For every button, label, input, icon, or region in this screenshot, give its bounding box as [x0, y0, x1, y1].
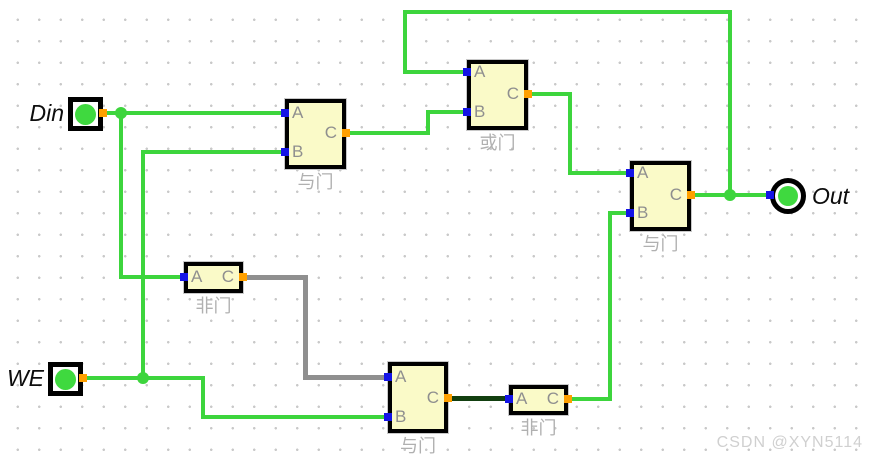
watermark: CSDN @XYN5114: [717, 434, 863, 452]
input-terminal-we[interactable]: [48, 362, 83, 396]
output-pin[interactable]: [564, 395, 572, 403]
gate-input-pin-label: B: [637, 204, 655, 221]
gate-output-pin-label: C: [501, 85, 519, 102]
gate-input-pin-label: A: [395, 368, 413, 385]
wire-segment-high[interactable]: [201, 376, 205, 419]
wire-segment-high[interactable]: [403, 10, 732, 14]
gate-input-pin-label: A: [292, 104, 310, 121]
gate-name-label: 与门: [368, 436, 468, 456]
gate-input-pin-label: B: [474, 103, 492, 120]
output-pin[interactable]: [444, 394, 452, 402]
wire-segment-high[interactable]: [101, 111, 287, 115]
input-pin[interactable]: [180, 273, 188, 281]
terminal-output-pin[interactable]: [99, 109, 107, 117]
output-pin[interactable]: [239, 273, 247, 281]
wire-segment-high[interactable]: [119, 111, 123, 279]
wire-segment-high[interactable]: [201, 415, 390, 419]
gate-output-pin-label: C: [319, 124, 337, 141]
gate-output-pin-label: C: [541, 390, 559, 407]
terminal-state-dot: [778, 186, 798, 206]
gate-output-pin-label: C: [664, 186, 682, 203]
wire-segment-high[interactable]: [526, 92, 572, 96]
terminal-label-out: Out: [812, 183, 870, 209]
output-pin[interactable]: [342, 129, 350, 137]
wire-junction: [115, 107, 127, 119]
terminal-output-pin[interactable]: [79, 374, 87, 382]
wire-segment-unknown[interactable]: [303, 375, 391, 380]
wire-segment-high[interactable]: [119, 275, 186, 279]
wire-junction: [137, 372, 149, 384]
input-pin[interactable]: [384, 373, 392, 381]
input-pin[interactable]: [505, 395, 513, 403]
wire-segment-high[interactable]: [728, 10, 732, 197]
output-pin[interactable]: [687, 191, 695, 199]
wire-segment-high[interactable]: [566, 397, 612, 401]
input-terminal-din[interactable]: [68, 97, 103, 131]
wire-segment-unknown[interactable]: [241, 275, 308, 280]
input-pin[interactable]: [281, 109, 289, 117]
wire-segment-high[interactable]: [568, 171, 632, 175]
wire-junction: [724, 189, 736, 201]
output-terminal-out[interactable]: [770, 178, 806, 214]
gate-input-pin-label: B: [395, 408, 413, 425]
terminal-state-dot: [75, 104, 96, 125]
circuit-canvas[interactable]: CSDN @XYN5114 ABC与门ABC或门ABC与门AC非门ABC与门AC…: [0, 0, 870, 462]
terminal-label-din: Din: [6, 100, 64, 126]
gate-name-label: 与门: [611, 234, 711, 254]
gate-input-pin-label: B: [292, 143, 310, 160]
gate-input-pin-label: A: [516, 390, 534, 407]
gate-output-pin-label: C: [216, 268, 234, 285]
input-pin[interactable]: [463, 108, 471, 116]
wire-segment-high[interactable]: [568, 92, 572, 175]
terminal-input-pin[interactable]: [766, 191, 774, 199]
output-pin[interactable]: [524, 90, 532, 98]
wire-segment-high[interactable]: [403, 10, 407, 74]
gate-input-pin-label: A: [191, 268, 209, 285]
terminal-label-we: WE: [0, 365, 44, 391]
gate-name-label: 与门: [266, 172, 366, 192]
input-pin[interactable]: [384, 413, 392, 421]
input-pin[interactable]: [463, 68, 471, 76]
wire-segment-high[interactable]: [344, 131, 430, 135]
input-pin[interactable]: [626, 169, 634, 177]
gate-input-pin-label: A: [637, 164, 655, 181]
gate-name-label: 非门: [164, 296, 264, 316]
wire-segment-high[interactable]: [141, 150, 287, 154]
gate-output-pin-label: C: [421, 389, 439, 406]
wire-segment-unknown[interactable]: [303, 275, 308, 380]
gate-name-label: 或门: [448, 133, 548, 153]
wire-segment-high[interactable]: [141, 150, 145, 380]
input-pin[interactable]: [281, 148, 289, 156]
gate-name-label: 非门: [489, 418, 589, 438]
wire-segment-high[interactable]: [403, 70, 469, 74]
gate-input-pin-label: A: [474, 63, 492, 80]
input-pin[interactable]: [626, 209, 634, 217]
terminal-state-dot: [55, 369, 76, 390]
wire-segment-low[interactable]: [446, 396, 512, 401]
